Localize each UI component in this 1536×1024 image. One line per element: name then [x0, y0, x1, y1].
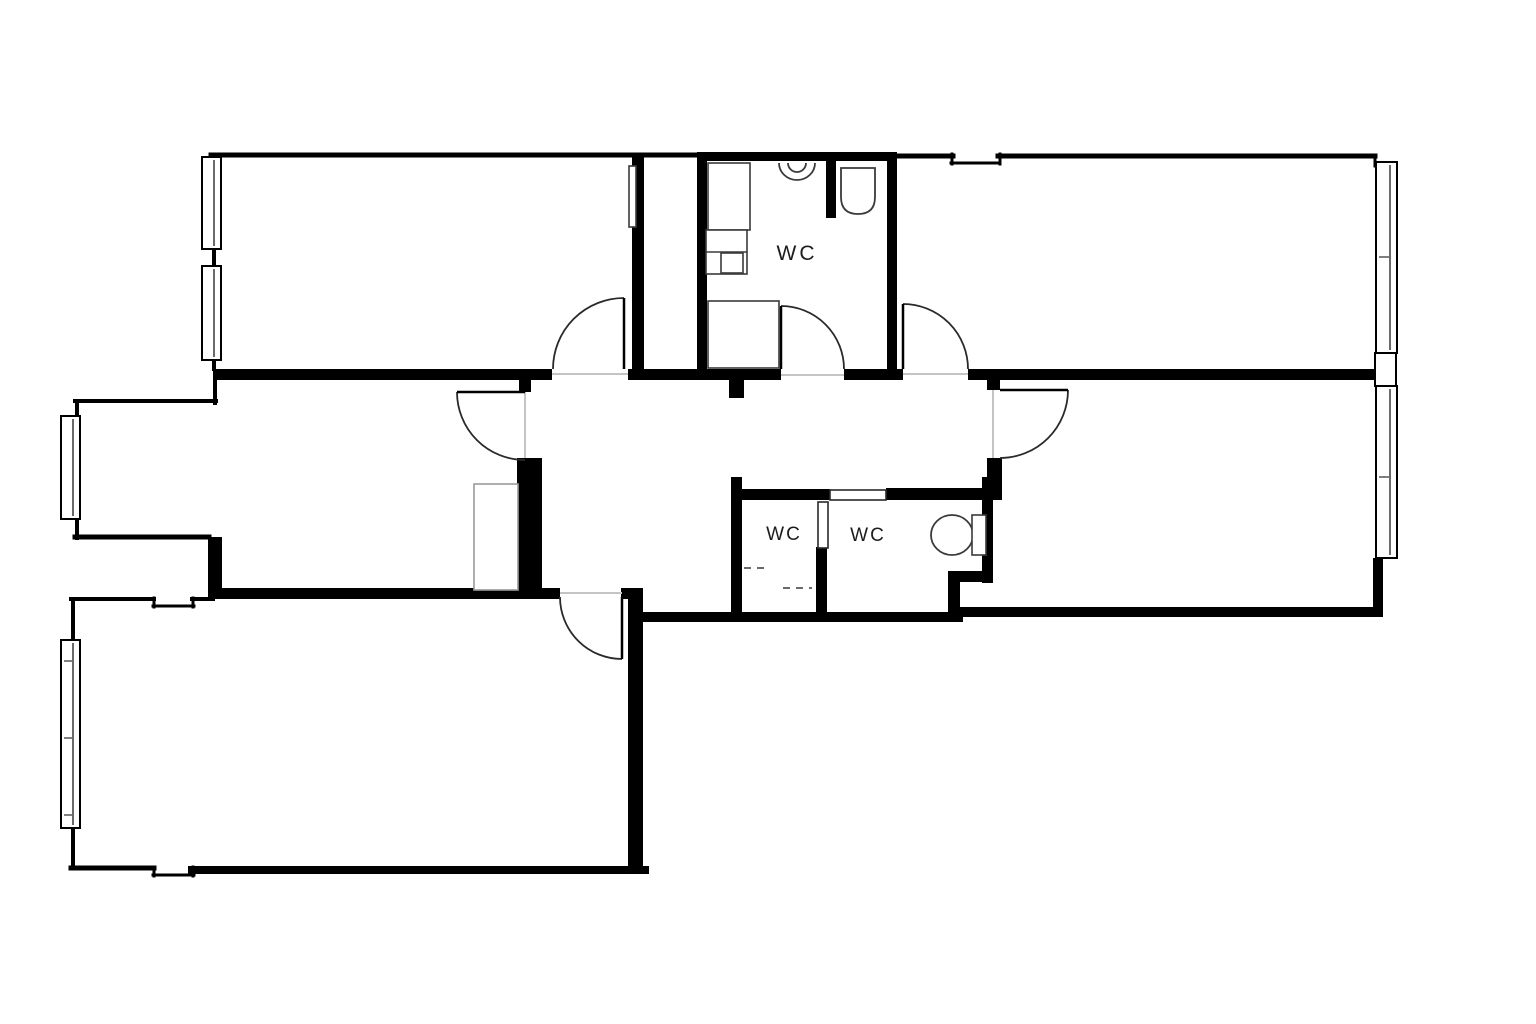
room-label-wc-bathroom: WC [777, 242, 818, 265]
window-room-a-2 [202, 266, 221, 360]
wall-band-1 [213, 369, 552, 380]
duct-icon [629, 166, 636, 227]
toilet-wc-tank-icon [972, 515, 986, 555]
toilet-wc-bowl-icon [931, 515, 973, 555]
room-label-wc-right: WC [850, 525, 886, 546]
floor-plan-canvas: WCWCWC [0, 0, 1536, 1024]
wall-band-4 [968, 369, 1374, 380]
room-label-wc-left: WC [766, 524, 802, 545]
wall-exterior-bottom-right [958, 607, 1383, 617]
wall-exterior-bottom-mid [643, 612, 963, 622]
wall-hall-stub [729, 379, 744, 398]
window-middle-left [61, 416, 80, 519]
wall-bottom-left-right [628, 588, 643, 873]
door-wc-inner-leaf [818, 502, 828, 548]
window-right-room [1376, 386, 1397, 558]
wall-bathroom-partition [826, 154, 836, 218]
shower-tray-icon [708, 301, 779, 368]
toilet-bathroom-icon [841, 168, 875, 214]
cabinet-icon [474, 484, 518, 590]
counter-small-box [721, 253, 743, 273]
wall-hall-left-jamb [519, 379, 531, 392]
wall-bathroom-top [697, 152, 897, 161]
wall-hall-left-block [517, 458, 542, 590]
door-wc-right-leaf [830, 490, 886, 500]
wall-right-room-jamb [987, 377, 1000, 390]
window-spacer-right [1375, 353, 1396, 386]
washer-icon [708, 163, 750, 230]
window-bottom-left [61, 640, 80, 828]
wall-wc-mid [816, 547, 827, 618]
wall-mid-left-step [208, 537, 222, 598]
wall-right-room-lower [987, 458, 1002, 500]
wall-wc-top-left [731, 489, 830, 500]
wall-bathroom-right [887, 154, 897, 380]
window-room-a-1 [202, 157, 221, 249]
floor-plan-svg: WCWCWC [0, 0, 1536, 1024]
wall-right-room-corner [1373, 558, 1383, 612]
